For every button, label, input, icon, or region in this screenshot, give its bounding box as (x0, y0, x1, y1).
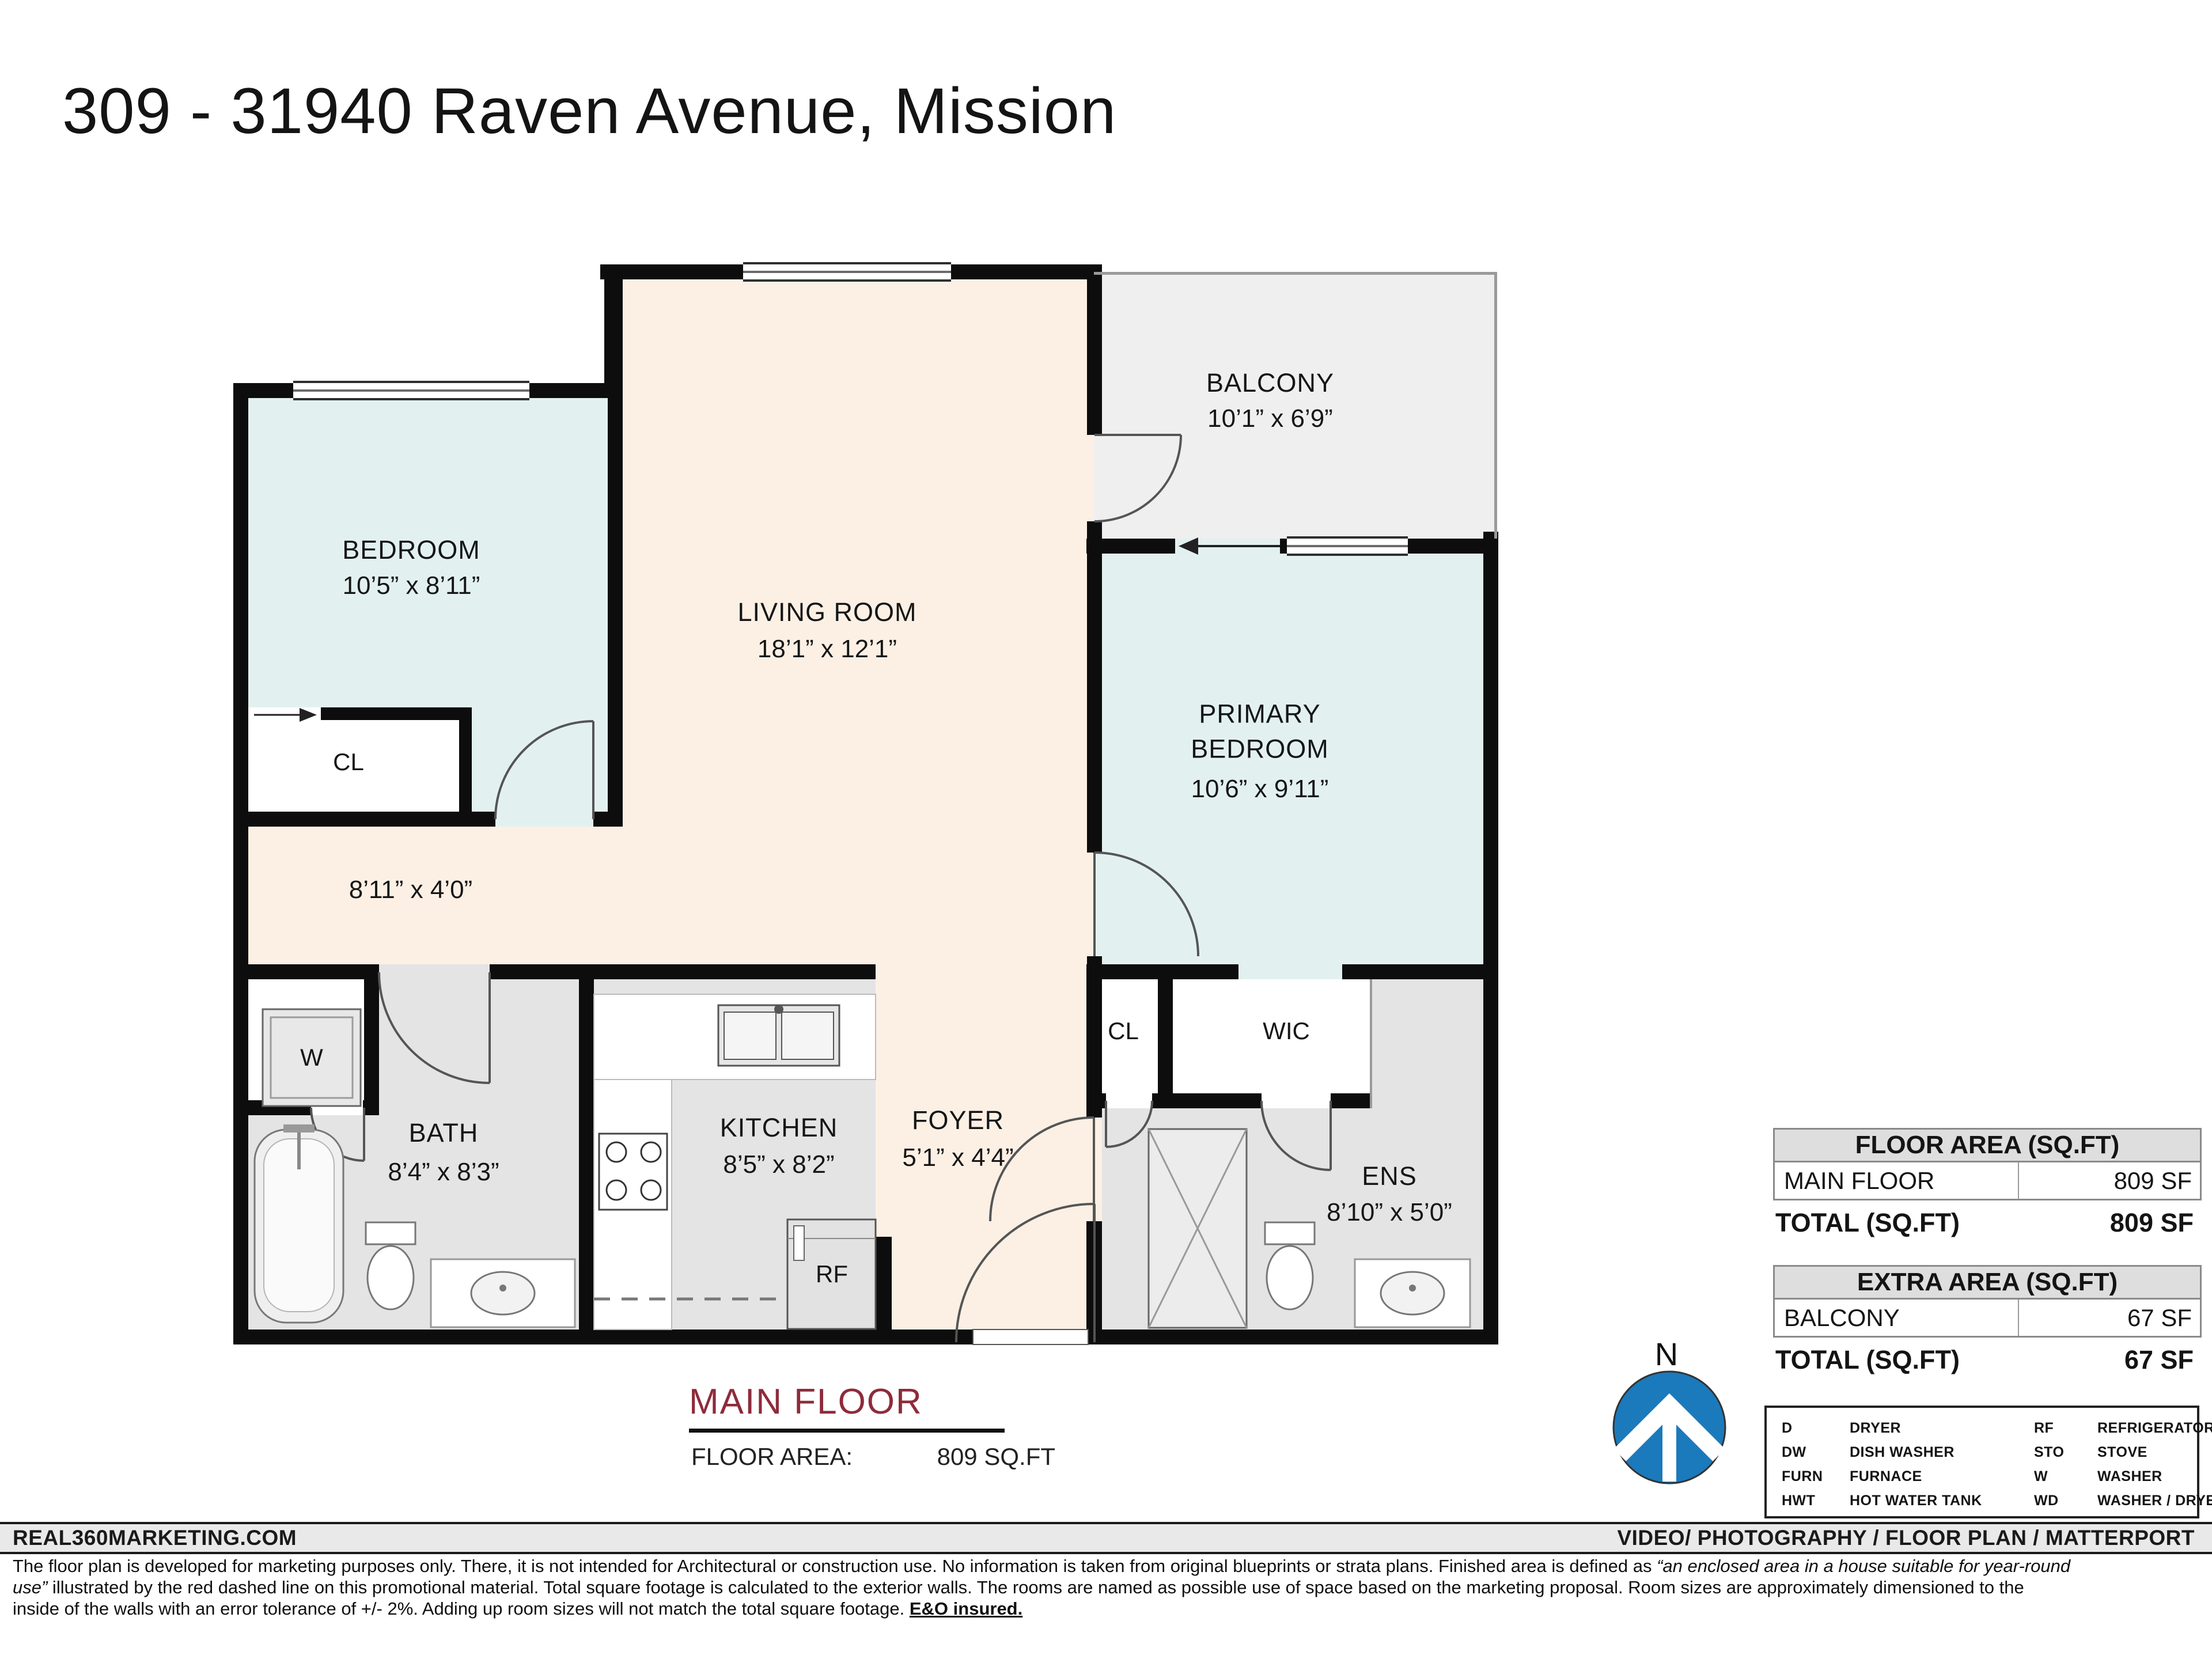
wall (1483, 532, 1498, 1344)
wall (321, 707, 472, 720)
table-row-label: BALCONY (1775, 1300, 2018, 1336)
wall (1152, 1093, 1262, 1108)
table-row: MAIN FLOOR 809 SF (1773, 1162, 2202, 1200)
room-ens-upper (1370, 979, 1483, 1108)
floor-area-table: FLOOR AREA (SQ.FT) MAIN FLOOR 809 SF TOT… (1773, 1128, 2202, 1245)
room-label-living: LIVING ROOM (737, 597, 916, 627)
wall (1280, 539, 1287, 554)
table-row-value: 809 SF (2018, 1162, 2200, 1199)
wall (233, 964, 379, 979)
legend-abbr: D (1782, 1420, 1850, 1437)
wall (1331, 1093, 1370, 1108)
legend-name: WASHER / DRYER (2097, 1493, 2212, 1509)
floor-name: MAIN FLOOR (689, 1381, 923, 1422)
legend-abbr: W (2034, 1468, 2097, 1485)
legend-name: DRYER (1850, 1420, 2034, 1437)
wall (1088, 1330, 1498, 1344)
table-header: FLOOR AREA (SQ.FT) (1773, 1128, 2202, 1162)
legend-box: D DRYER RF REFRIGERATOR DW DISH WASHER S… (1764, 1406, 2199, 1518)
table-total-row: TOTAL (SQ.FT) 809 SF (1773, 1200, 2202, 1245)
floor-area-value: 809 SQ.FT (876, 1443, 1055, 1471)
closet-label-cl1: CL (333, 748, 364, 776)
wall (1087, 264, 1102, 435)
room-label-primary: PRIMARY BEDROOM (1139, 696, 1381, 767)
wall (608, 383, 623, 827)
room-dims-bedroom: 10’5” x 8’11” (343, 571, 480, 600)
wall (604, 264, 623, 398)
room-dims-living: 18’1” x 12’1” (757, 635, 897, 664)
wall (363, 1100, 379, 1115)
table-header: EXTRA AREA (SQ.FT) (1773, 1265, 2202, 1300)
legend-abbr: WD (2034, 1493, 2097, 1509)
wall-thin (1370, 979, 1372, 1108)
floor-area-label: FLOOR AREA: (691, 1443, 853, 1471)
footer-website: REAL360MARKETING.COM (0, 1526, 297, 1550)
room-dims-foyer: 5’1” x 4’4” (902, 1143, 1013, 1172)
wall (1408, 539, 1498, 554)
room-label-balcony: BALCONY (1206, 368, 1334, 398)
compass-north-label: N (1655, 1335, 1678, 1373)
room-dims-kitchen: 8’5” x 8’2” (723, 1150, 834, 1179)
legend-abbr: STO (2034, 1444, 2097, 1461)
footer-services: VIDEO/ PHOTOGRAPHY / FLOOR PLAN / MATTER… (1617, 1526, 2212, 1550)
window (293, 381, 529, 400)
room-dims-bath: 8’4” x 8’3” (388, 1158, 499, 1187)
footer-bar: REAL360MARKETING.COM VIDEO/ PHOTOGRAPHY … (0, 1522, 2212, 1554)
balcony-railing (1494, 272, 1497, 539)
room-dims-balcony: 10’1” x 6’9” (1207, 404, 1333, 433)
legend-abbr: DW (1782, 1444, 1850, 1461)
table-total-label: TOTAL (SQ.FT) (1775, 1208, 1960, 1238)
wall (233, 1100, 311, 1115)
table-row-value: 67 SF (2018, 1300, 2200, 1336)
legend-row: DW DISH WASHER STO STOVE (1782, 1440, 2197, 1464)
table-total-value: 67 SF (2124, 1345, 2194, 1375)
wall (1086, 1221, 1102, 1344)
disclaimer-seg4: E&O insured. (910, 1599, 1022, 1619)
room-dims-primary: 10’6” x 9’11” (1191, 775, 1329, 804)
page-title: 309 - 31940 Raven Avenue, Mission (62, 74, 1116, 148)
room-label-bedroom: BEDROOM (342, 535, 480, 565)
wall (1086, 964, 1238, 979)
extra-area-table: EXTRA AREA (SQ.FT) BALCONY 67 SF TOTAL (… (1773, 1265, 2202, 1382)
legend-name: STOVE (2097, 1444, 2197, 1461)
room-label-wic: WIC (1263, 1017, 1310, 1045)
disclaimer-seg1: The floor plan is developed for marketin… (13, 1556, 1657, 1576)
wall (593, 812, 623, 827)
wall (1342, 964, 1498, 979)
table-row-label: MAIN FLOOR (1775, 1162, 2018, 1199)
legend-row: D DRYER RF REFRIGERATOR (1782, 1416, 2197, 1440)
legend-name: REFRIGERATOR (2097, 1420, 2212, 1437)
wall (1094, 1093, 1106, 1108)
room-label-bath: BATH (409, 1118, 479, 1148)
wall (233, 1330, 973, 1344)
wall (233, 383, 248, 1344)
table-total-value: 809 SF (2110, 1208, 2194, 1238)
legend-name: WASHER (2097, 1468, 2197, 1485)
wall (364, 964, 379, 1115)
fridge-label: RF (816, 1260, 848, 1288)
table-total-label: TOTAL (SQ.FT) (1775, 1345, 1960, 1375)
legend-name: HOT WATER TANK (1850, 1493, 2034, 1509)
legend-name: FURNACE (1850, 1468, 2034, 1485)
room-label-ens: ENS (1362, 1161, 1417, 1191)
room-dims-hallway: 8’11” x 4’0” (349, 876, 472, 904)
table-total-row: TOTAL (SQ.FT) 67 SF (1773, 1338, 2202, 1382)
wall (579, 964, 876, 979)
legend-abbr: RF (2034, 1420, 2097, 1437)
window (743, 262, 951, 282)
wall (490, 964, 579, 979)
room-label-kitchen: KITCHEN (720, 1113, 838, 1143)
wall (459, 707, 472, 824)
wall (1158, 979, 1173, 1108)
wall (1087, 521, 1102, 853)
room-dims-ens: 8’10” x 5’0” (1327, 1198, 1452, 1227)
floor-plan-page: 309 - 31940 Raven Avenue, Mission (0, 0, 2212, 1659)
room-label-foyer: FOYER (912, 1105, 1004, 1135)
legend-abbr: FURN (1782, 1468, 1850, 1485)
legend-abbr: HWT (1782, 1493, 1850, 1509)
wall (876, 1237, 892, 1344)
legend-row: HWT HOT WATER TANK WD WASHER / DRYER (1782, 1488, 2197, 1513)
floor-name-underline (689, 1429, 1005, 1433)
balcony-railing (1094, 272, 1497, 275)
washer-label: W (300, 1044, 323, 1071)
wall (579, 964, 594, 1344)
closet-label-cl2: CL (1108, 1017, 1139, 1045)
wall (233, 812, 495, 827)
legend-name: DISH WASHER (1850, 1444, 2034, 1461)
window (1287, 536, 1408, 556)
legend-row: FURN FURNACE W WASHER (1782, 1464, 2197, 1488)
disclaimer-text: The floor plan is developed for marketin… (13, 1555, 2075, 1619)
wall (1086, 539, 1175, 554)
table-row: BALCONY 67 SF (1773, 1300, 2202, 1338)
